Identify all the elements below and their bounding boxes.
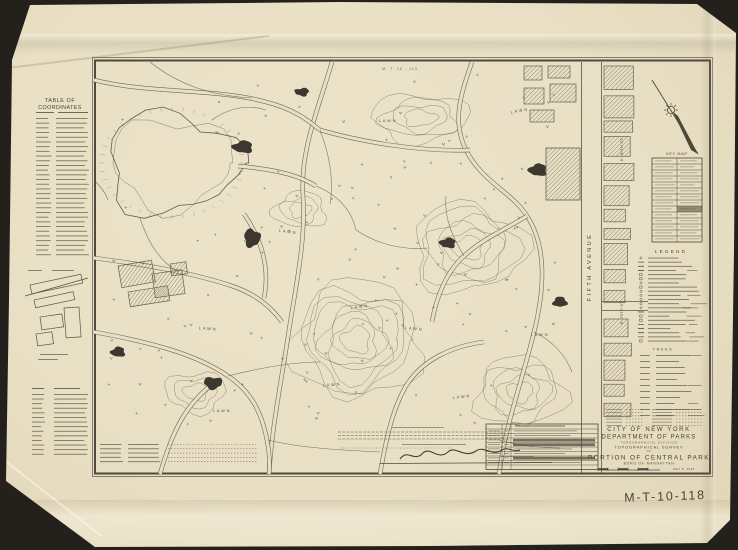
street-label-e80: E. 80TH ST.	[620, 137, 624, 161]
fifth-avenue-label: FIFTH AVENUE	[587, 233, 593, 301]
map-sheet-paper: LAWNLAWNLAWNLAWNLAWNLAWNLAWNLAWNLAWNLAWN…	[0, 0, 738, 550]
street-label-e79: E. 79TH ST.	[620, 300, 624, 324]
lawn-label: LAWN	[510, 106, 529, 114]
lawn-label: LAWN	[213, 408, 232, 413]
title-block: CITY OF NEW YORK DEPARTMENT OF PARKS TOP…	[588, 427, 710, 471]
title-block-map-title: PORTION OF CENTRAL PARK	[588, 455, 710, 462]
lawn-labels: LAWNLAWNLAWNLAWNLAWNLAWNLAWNLAWNLAWNLAWN	[199, 106, 550, 413]
legend-panel	[638, 257, 707, 416]
lawn-label: LAWN	[199, 325, 218, 332]
north-arrow-icon	[652, 80, 698, 154]
legend-title: LEGEND	[655, 249, 687, 254]
fifth-avenue-buildings	[118, 62, 648, 473]
lawn-label: LAWN	[279, 228, 298, 236]
lawn-label: LAWN	[531, 332, 550, 337]
key-map-title: KEY MAP	[666, 152, 688, 156]
scanned-map-sheet: LAWNLAWNLAWNLAWNLAWNLAWNLAWNLAWNLAWNLAWN…	[0, 0, 738, 550]
title-block-city: CITY OF NEW YORK	[607, 427, 690, 433]
lawn-label: LAWN	[452, 393, 471, 400]
scale-bar	[598, 468, 660, 472]
credits-notes	[100, 427, 504, 462]
title-block-of: OF	[647, 449, 652, 453]
lawn-label: LAWN	[405, 325, 424, 332]
title-block-division: TOPOGRAPHICAL DIVISION	[620, 441, 677, 445]
coordinates-table-title-2: COORDINATES	[38, 105, 82, 111]
key-map-grid	[652, 158, 702, 242]
park-drives-and-paths	[94, 62, 572, 474]
tree-marks	[108, 74, 556, 425]
inset-sketch	[25, 270, 88, 360]
title-block-survey: TOPOGRAPHICAL SURVEY	[614, 446, 683, 450]
coordinates-table-title: TABLE OF	[45, 98, 76, 104]
title-block-date: MAY 8, 1935	[673, 467, 694, 471]
sheet-number: M-T-10-118	[624, 488, 706, 505]
lawn-label: LAWN	[379, 118, 398, 123]
legend-trees-heading: TREES	[653, 348, 674, 352]
top-margin-sheet-ref: M. T. 10 - 113	[382, 67, 418, 71]
title-block-boro: BORO OF MANHATTAN	[624, 462, 675, 466]
map-drawing: LAWNLAWNLAWNLAWNLAWNLAWNLAWNLAWNLAWNLAWN…	[0, 0, 738, 550]
lawn-label: LAWN	[322, 381, 341, 387]
pond	[99, 107, 249, 219]
